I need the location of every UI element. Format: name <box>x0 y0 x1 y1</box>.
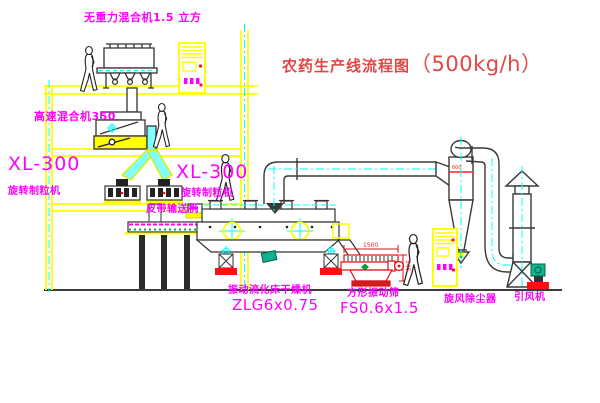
cad-flow-diagram: 农药生产线流程图 （500kg/h） 无重力混合机1.5 立方 高速混合机350… <box>0 0 600 403</box>
indicator-light <box>451 238 454 241</box>
label-gravity-mixer: 无重力混合机1.5 立方 <box>84 12 201 23</box>
indicator-light <box>452 268 455 271</box>
label-granulator-left-model: XL-300 <box>8 155 80 174</box>
screen-feed-chute <box>338 240 361 256</box>
control-cabinet-top <box>179 43 205 93</box>
dryer-exhaust-duct <box>264 158 436 204</box>
title-text: 农药生产线流程图 <box>282 55 410 76</box>
label-granulator-mid-model: XL-300 <box>176 163 248 182</box>
label-granulator-mid-name: 旋转制粒机 <box>181 189 234 199</box>
indicator-light <box>199 64 202 67</box>
indicator-light <box>199 83 202 86</box>
dim-cyclone: 600 <box>452 165 462 171</box>
fluid-bed-dryer <box>197 201 342 276</box>
belt-conveyor <box>124 222 209 289</box>
granulator-feed-chute <box>122 150 172 180</box>
duct-centerlines <box>268 166 438 212</box>
control-cabinet-ground <box>433 229 457 286</box>
label-screen-model: FS0.6x1.5 <box>340 301 419 316</box>
dim-screen-length: 1500 <box>363 242 378 249</box>
page-title: 农药生产线流程图 （500kg/h） <box>282 48 542 78</box>
label-screen-name: 方形振动筛 <box>347 289 400 299</box>
granulator-left <box>104 179 141 204</box>
label-belt-conveyor: 皮带输送机 <box>146 205 199 215</box>
dim-screen-height: 545 <box>404 260 411 271</box>
title-capacity: （500kg/h） <box>410 48 542 78</box>
label-high-speed-mixer: 高速混合机350 <box>34 111 116 122</box>
label-cyclone: 旋风除尘器 <box>444 295 497 305</box>
label-granulator-left-name: 旋转制粒机 <box>8 187 61 197</box>
gravity-free-mixer <box>97 44 157 112</box>
label-dryer-name: 振动流化床干燥机 <box>228 286 312 296</box>
label-fan: 引风机 <box>514 293 546 303</box>
person-top-floor <box>81 47 98 92</box>
label-dryer-model: ZLG6x0.75 <box>232 298 319 313</box>
